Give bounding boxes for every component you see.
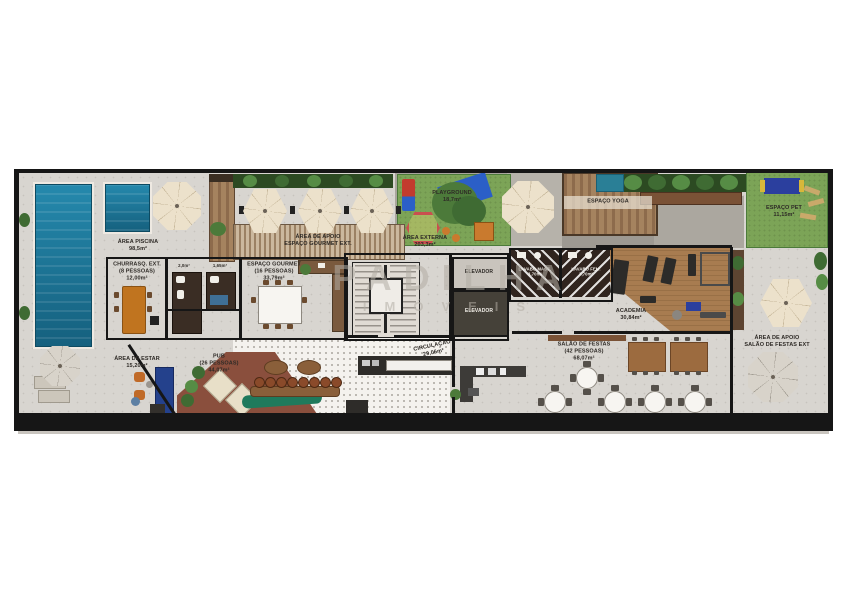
chair <box>696 337 701 341</box>
dumbbell-rack-icon <box>700 312 726 318</box>
wall-pub-salao <box>452 397 455 414</box>
wall-bottom <box>14 413 833 431</box>
plant-icon <box>300 264 311 275</box>
back-bar-counter <box>386 360 452 371</box>
chair <box>632 371 637 375</box>
chair <box>643 337 648 341</box>
bar-stool <box>298 377 309 388</box>
armchair <box>134 372 145 382</box>
bar-stool <box>320 377 331 388</box>
kids-pool <box>103 182 152 234</box>
plant-icon <box>696 175 714 190</box>
kitchen-counter <box>332 274 347 332</box>
wall-academia-top <box>596 245 732 248</box>
plant-icon <box>732 256 744 270</box>
chair <box>674 337 679 341</box>
banquet-table <box>628 342 666 372</box>
toilet-icon <box>176 276 185 283</box>
plant-icon <box>243 175 257 187</box>
chair <box>251 297 256 303</box>
wall-right <box>828 169 833 417</box>
chair <box>275 324 281 329</box>
bench-icon <box>640 296 656 303</box>
plant-icon <box>181 394 194 407</box>
plant-icon <box>19 306 30 320</box>
room-label-lavabo-fem: LAVABO FEM.3,70m² <box>571 267 600 278</box>
exercise-ball-icon <box>672 310 682 320</box>
pet-bed-side <box>760 180 765 192</box>
room-label-playground: PLAYGROUND18,7m² <box>432 190 472 204</box>
party-kitchen-counter <box>460 366 473 402</box>
shaft <box>369 278 403 314</box>
room-label-pub: PUB(26 PESSOAS)44,07m² <box>199 353 238 374</box>
appliance <box>476 368 484 375</box>
swimming-pool <box>33 182 94 349</box>
plant-icon <box>672 175 690 190</box>
sink-icon <box>517 252 526 258</box>
sink-icon <box>177 290 184 299</box>
room-label-apoio-gourmet: ÁREA DE APOIOESPAÇO GOURMET EXT. <box>284 234 352 248</box>
chair <box>654 371 659 375</box>
room-label-apoio-salao: ÁREA DE APOIOSALÃO DE FESTAS EXT <box>744 335 809 349</box>
room-label-piscina: ÁREA PISCINA98,5m² <box>118 239 158 253</box>
buffet-counter <box>548 335 626 341</box>
room-label-wc-a: 2,0m² <box>178 263 190 269</box>
appliance <box>488 368 496 375</box>
wood-deck <box>209 174 235 262</box>
plant-icon <box>19 213 30 227</box>
exercise-bike-icon <box>688 254 696 276</box>
plant-icon <box>720 175 738 190</box>
cabinet <box>150 404 165 413</box>
plant-icon <box>185 380 198 393</box>
yoga-mat <box>596 174 624 192</box>
storage-block <box>346 400 368 413</box>
plant-icon <box>275 175 289 187</box>
chair <box>287 324 293 329</box>
cable-machine-icon <box>700 252 730 286</box>
plant-icon <box>369 175 383 187</box>
chair <box>302 297 307 303</box>
wall-partition <box>449 253 452 339</box>
plant-icon <box>648 175 666 190</box>
wall-shadow <box>18 431 829 434</box>
sink-icon <box>318 263 325 268</box>
dining-table <box>258 286 302 324</box>
chair <box>147 306 152 312</box>
toilet-icon <box>210 276 219 283</box>
wall-partition <box>559 248 562 298</box>
play-house-icon <box>474 222 494 241</box>
sun-lounger <box>38 390 70 403</box>
room-label-academia: ACADEMIA30,84m² <box>616 308 646 322</box>
chair <box>654 337 659 341</box>
play-item <box>452 234 460 242</box>
bar-stool <box>331 377 342 388</box>
banquet-table <box>670 342 708 372</box>
bbq-table <box>122 286 146 334</box>
toilet-icon <box>585 252 592 259</box>
grill-icon <box>150 316 159 325</box>
plant-icon <box>732 292 744 306</box>
wall-left <box>14 169 19 417</box>
wall-pub-top <box>346 335 378 338</box>
chair <box>147 292 152 298</box>
toilet-icon <box>534 252 541 259</box>
room-label-estar: ÁREA DE ESTAR15,20m² <box>114 356 160 370</box>
wall-pub-top <box>394 335 452 338</box>
room-label-wc-b: 1,65m² <box>213 263 227 269</box>
shower-mat <box>210 295 228 305</box>
plant-icon <box>339 175 353 187</box>
plant-icon <box>816 274 828 290</box>
planter-box <box>640 192 742 205</box>
wall-salao-top <box>512 331 562 334</box>
wall-top <box>14 169 833 173</box>
terrace-chair <box>239 206 244 214</box>
chair <box>643 371 648 375</box>
chair <box>685 337 690 341</box>
room-label-gourmet: ESPAÇO GOURMET(16 PESSOAS)33,79m² <box>247 261 301 282</box>
stairwell <box>352 262 420 338</box>
wall-partition <box>165 257 168 338</box>
chair <box>632 337 637 341</box>
wall-partition <box>165 309 242 311</box>
room-label-lavabo-masc: LAVABO MASC.3,70m² <box>519 267 552 278</box>
kitchen-island <box>468 388 479 396</box>
wall-partition <box>239 257 242 338</box>
bar-table-oval <box>297 360 321 375</box>
bar-stool <box>287 377 298 388</box>
bar-table-oval <box>264 360 288 375</box>
chair <box>263 324 269 329</box>
bar-stool <box>309 377 320 388</box>
plant-icon <box>624 175 642 190</box>
chair <box>674 371 679 375</box>
gym-mat <box>686 302 701 311</box>
terrace-chair <box>396 206 401 214</box>
room-label-elevador-2: ELEVADOR <box>465 308 493 315</box>
chair <box>114 292 119 298</box>
plant-icon <box>307 175 321 187</box>
play-item <box>442 227 450 235</box>
chair <box>685 371 690 375</box>
terrace-chair <box>344 206 349 214</box>
umbrella-icon <box>40 346 80 386</box>
appliance <box>372 360 379 366</box>
floor-plan: ÁREA PISCINA98,5m² ÁREA DE APOIOESPAÇO G… <box>0 0 847 600</box>
slide-icon <box>402 179 415 211</box>
appliance <box>500 368 506 375</box>
room-label-yoga: ESPAÇO YOGA <box>587 198 629 205</box>
chair <box>114 306 119 312</box>
wall-salao-top <box>574 331 732 334</box>
sink-icon <box>568 252 577 258</box>
terrace-chair <box>290 206 295 214</box>
appliance <box>362 360 370 366</box>
room-label-salao: SALÃO DE FESTAS(42 PESSOAS)68,07m² <box>558 341 611 362</box>
pet-bed <box>764 178 800 194</box>
plant-icon <box>210 222 226 236</box>
stool-round <box>131 397 140 406</box>
wall-pub-salao <box>452 335 455 387</box>
plant-icon <box>814 252 827 270</box>
room-label-area-externa: ÁREA EXTERNA203,3m² <box>403 235 447 249</box>
bar-stool <box>276 377 287 388</box>
room-label-elevador-1: ELEVADOR <box>465 269 493 276</box>
bar-stool <box>265 377 276 388</box>
bar-stool <box>254 377 265 388</box>
room-label-churrasq: CHURRASQ. EXT.(8 PESSOAS)12,00m² <box>113 261 161 282</box>
umbrella-icon <box>748 352 798 402</box>
wall-right-court <box>730 247 733 414</box>
room-label-pet: ESPAÇO PET11,15m² <box>766 205 802 219</box>
planter-box <box>209 174 233 182</box>
chair <box>696 371 701 375</box>
